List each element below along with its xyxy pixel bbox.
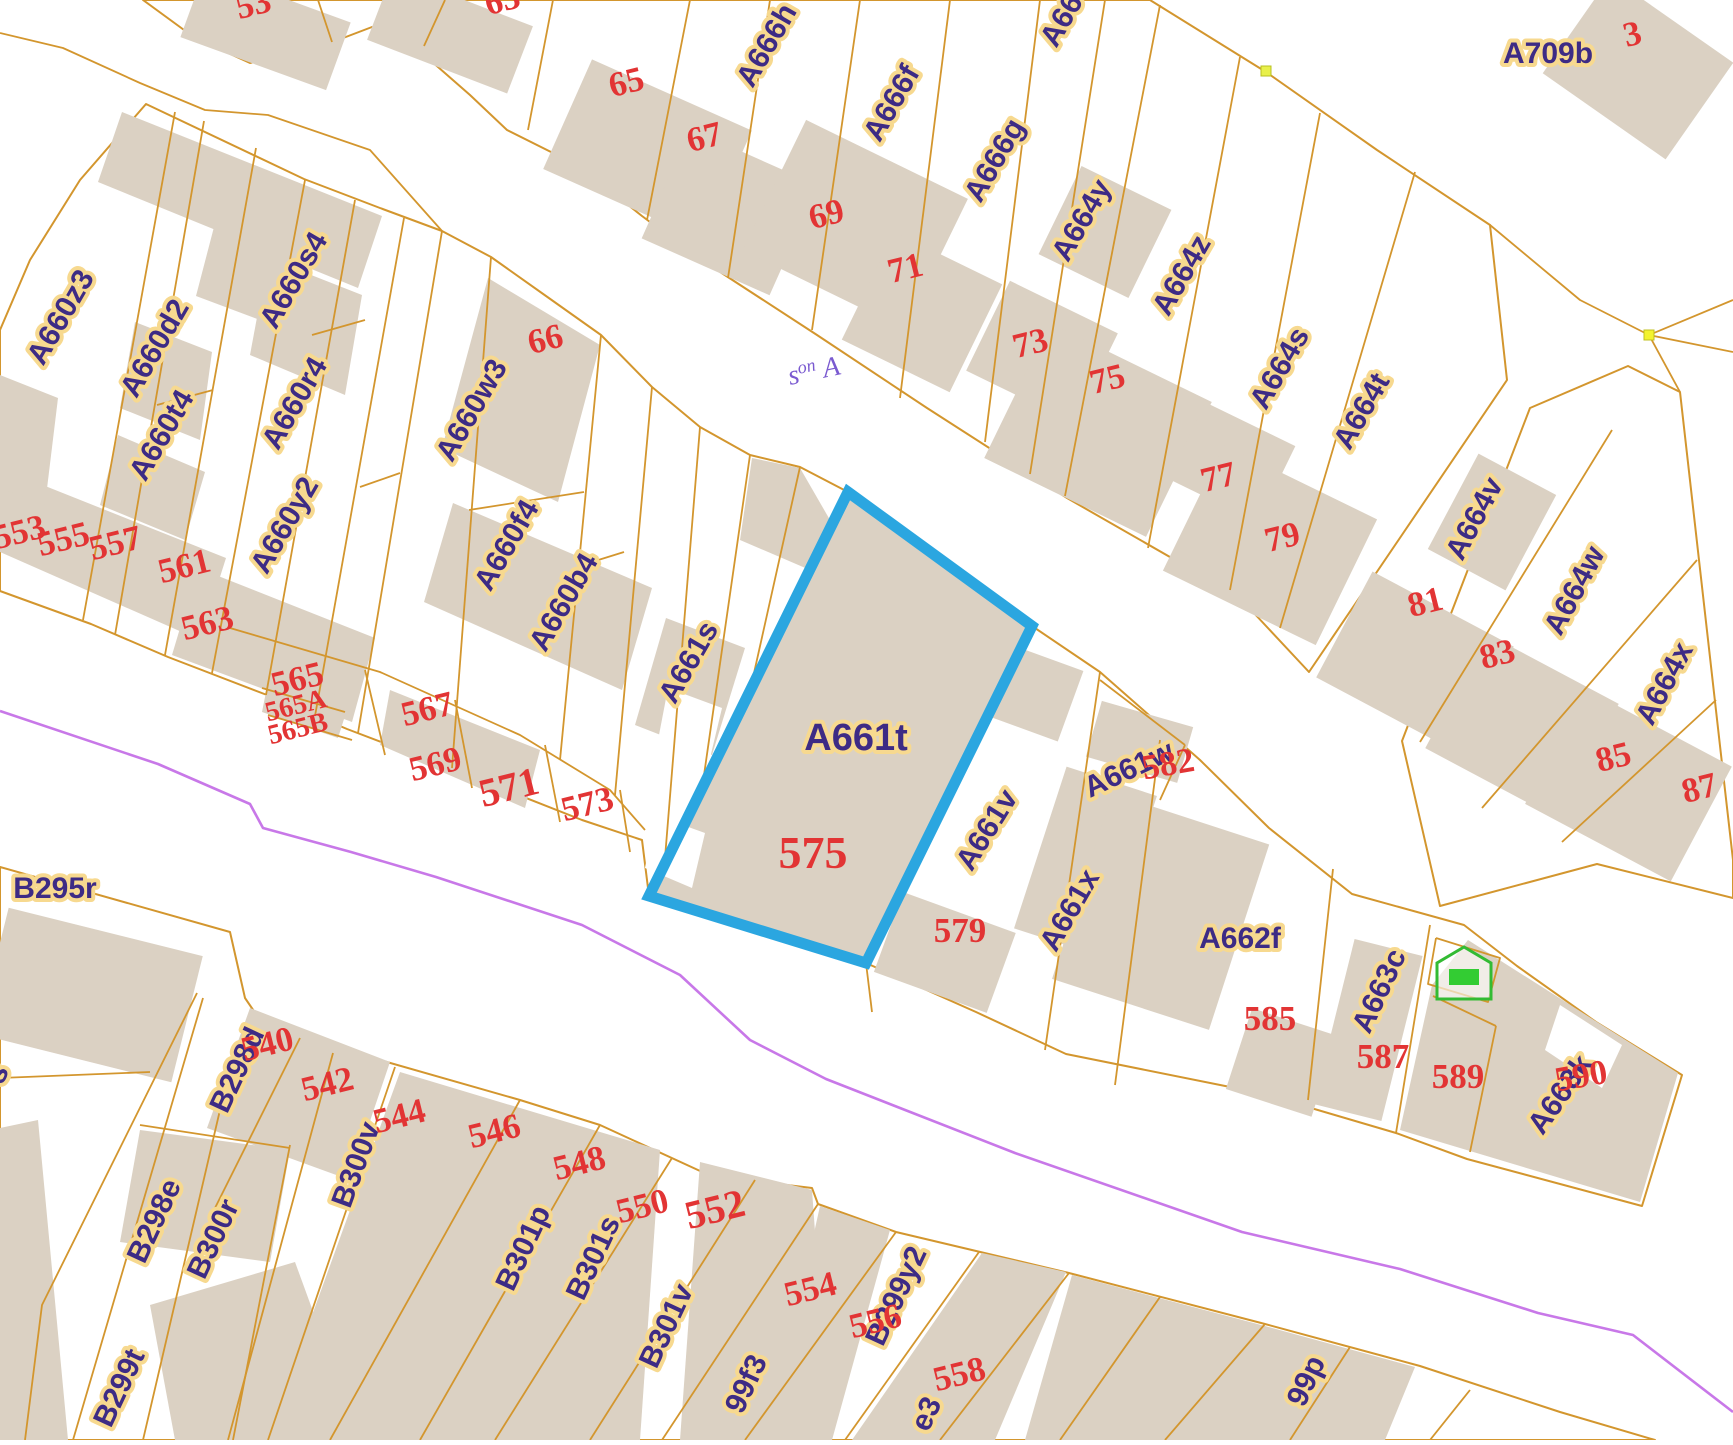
svg-text:579: 579	[934, 911, 987, 950]
svg-text:587: 587	[1357, 1037, 1410, 1076]
svg-text:585: 585	[1244, 999, 1297, 1038]
svg-text:575: 575	[779, 827, 848, 878]
svg-text:589: 589	[1432, 1057, 1485, 1096]
svg-text:A709b: A709b	[1503, 37, 1593, 70]
svg-text:A662f: A662f	[1199, 922, 1282, 955]
svg-text:A661t: A661t	[804, 717, 908, 759]
svg-text:B295r: B295r	[13, 872, 97, 905]
